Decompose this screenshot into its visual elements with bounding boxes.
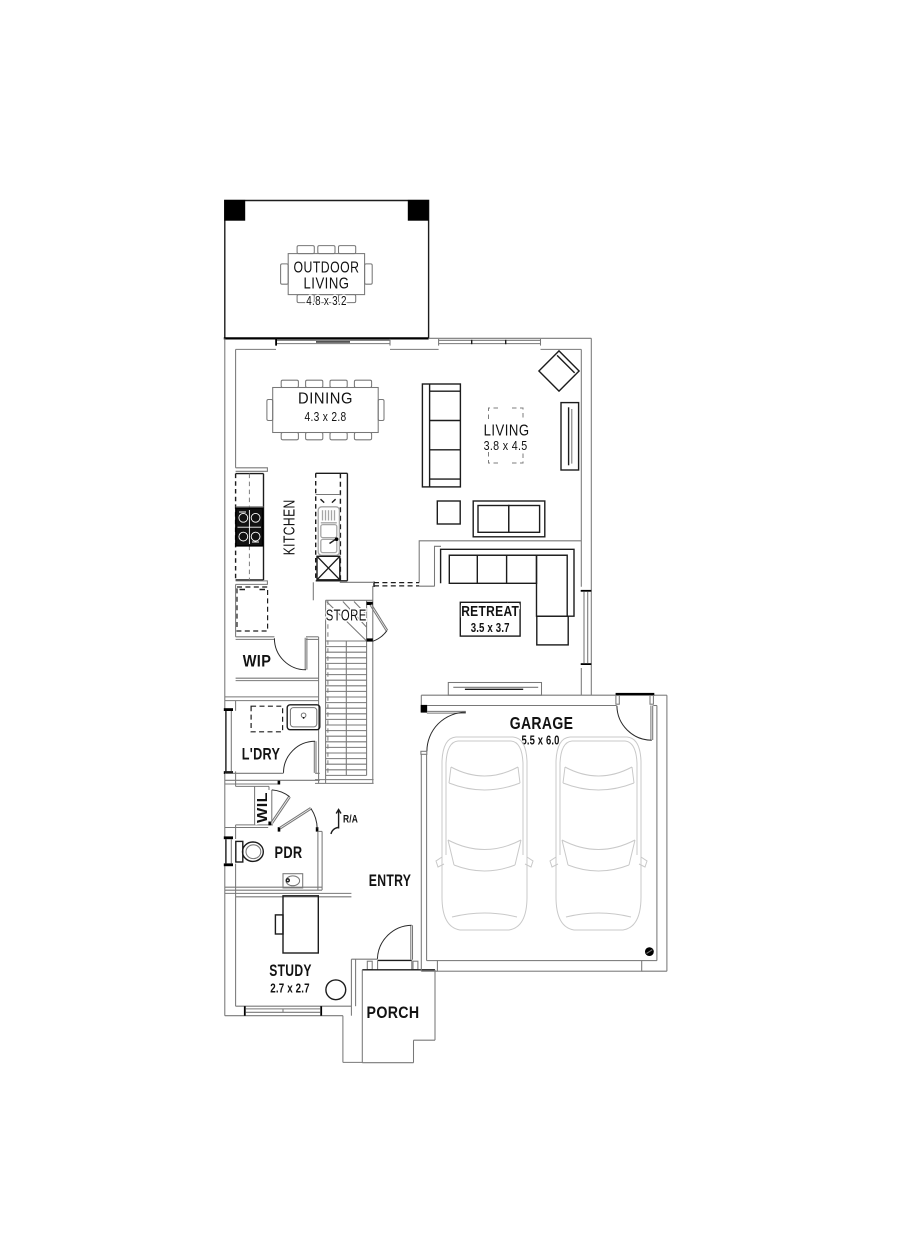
svg-text:DINING: DINING	[298, 391, 353, 408]
svg-text:LIVING: LIVING	[304, 275, 350, 292]
svg-text:3.5 x 3.7: 3.5 x 3.7	[471, 620, 510, 635]
svg-text:STORE: STORE	[326, 608, 367, 625]
svg-text:3.8 x 4.5: 3.8 x 4.5	[484, 439, 528, 453]
svg-text:PDR: PDR	[275, 844, 303, 862]
svg-text:L'DRY: L'DRY	[242, 746, 281, 764]
svg-text:R/A: R/A	[343, 814, 358, 826]
svg-text:LIVING: LIVING	[484, 422, 530, 439]
svg-text:STUDY: STUDY	[269, 962, 312, 980]
svg-text:5.5 x 6.0: 5.5 x 6.0	[522, 733, 560, 748]
svg-text:WIL: WIL	[255, 792, 271, 823]
svg-text:KITCHEN: KITCHEN	[282, 499, 299, 555]
svg-text:WIP: WIP	[243, 653, 272, 671]
svg-text:PORCH: PORCH	[367, 1004, 420, 1022]
svg-text:OUTDOOR: OUTDOOR	[294, 259, 360, 276]
svg-text:RETREAT: RETREAT	[461, 603, 519, 620]
svg-text:2.7 x 2.7: 2.7 x 2.7	[270, 981, 310, 996]
svg-text:GARAGE: GARAGE	[510, 713, 574, 733]
svg-text:4.3 x 2.8: 4.3 x 2.8	[305, 410, 347, 424]
svg-text:4.8 x 3.2: 4.8 x 3.2	[306, 294, 347, 308]
svg-text:ENTRY: ENTRY	[369, 872, 412, 890]
